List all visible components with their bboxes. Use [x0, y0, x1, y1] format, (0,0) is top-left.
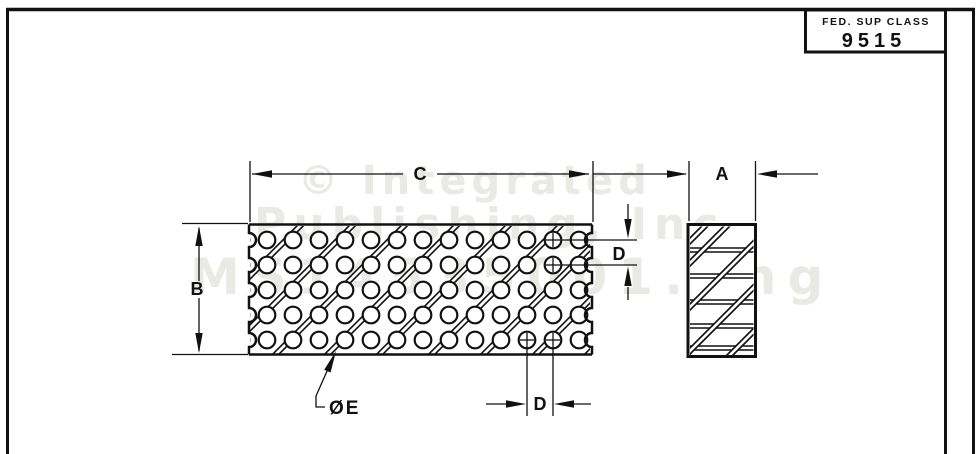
d-vert-arrow-down	[624, 219, 631, 239]
d-vert-arrow-up	[624, 267, 631, 287]
fed-sup-class-value: 9515	[842, 30, 907, 52]
dimension-d-horizontal: D	[486, 347, 591, 416]
d-horiz-arrow-left	[554, 400, 574, 407]
dimension-b: B	[172, 224, 248, 355]
title-block: FED. SUP CLASS 9515	[806, 10, 946, 52]
a-arrow-left	[667, 170, 687, 178]
hole-grid	[250, 226, 590, 354]
c-arrow-right	[569, 170, 589, 178]
hole-diameter-callout: ØE	[316, 351, 360, 419]
dimension-a: A	[593, 161, 818, 221]
d-horizontal-label: D	[534, 394, 547, 414]
a-arrow-right	[757, 170, 777, 178]
b-arrow-bottom	[195, 333, 202, 353]
d-vertical-label: D	[613, 244, 626, 264]
d-horiz-arrow-right	[506, 400, 526, 407]
leader-elbow	[316, 396, 325, 407]
a-label: A	[716, 164, 729, 184]
c-arrow-left	[252, 170, 272, 178]
fed-sup-class-label: FED. SUP CLASS	[822, 16, 930, 28]
b-label: B	[191, 279, 204, 299]
front-view-perforated-plate	[170, 220, 722, 356]
b-arrow-top	[195, 226, 202, 246]
c-label: C	[414, 164, 427, 184]
leader-line	[316, 370, 328, 396]
dimension-c: C	[250, 161, 593, 222]
hole-diameter-label: ØE	[329, 398, 360, 419]
engineering-drawing: FED. SUP CLASS 9515	[0, 0, 980, 454]
drawing-sheet: © Integrated Publishing, Inc MS14535001.…	[0, 0, 980, 454]
